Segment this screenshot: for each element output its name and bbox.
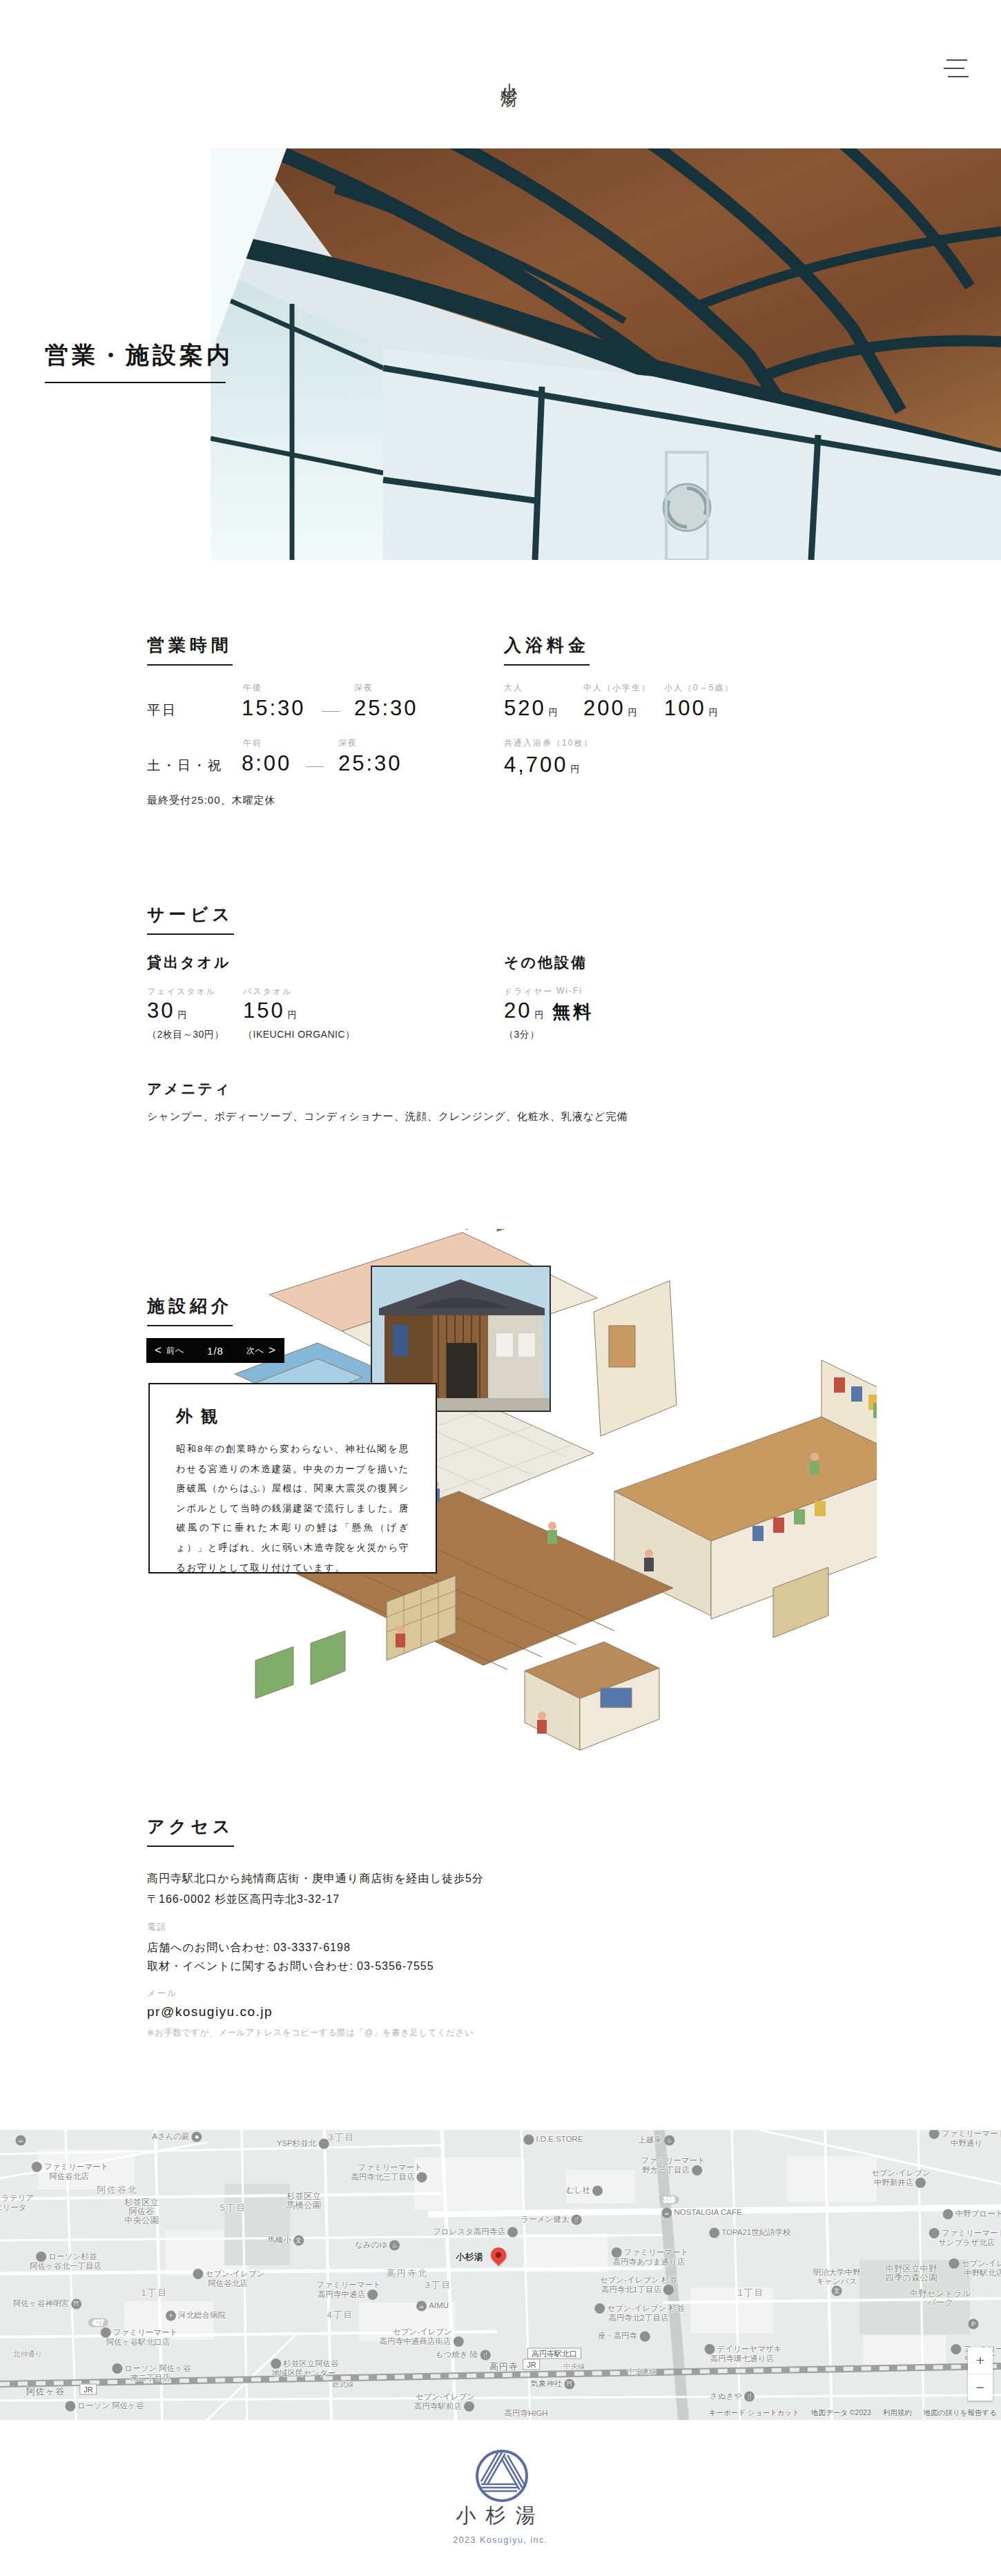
map-label: ファミリーマート中野通り xyxy=(927,2130,1001,2148)
map-label: ファミリーマートサンプラザ北店 xyxy=(927,2228,1001,2247)
map-label: 阿佐ヶ谷神明宮⛩ xyxy=(13,2299,84,2309)
poi-pin-icon xyxy=(592,2186,603,2196)
map-label: 中野セントラルパーク xyxy=(910,2289,971,2307)
fee-value: 520円 xyxy=(504,696,558,721)
fee-label: 小人（0～5歳） xyxy=(664,682,734,694)
map-label: ローソン 阿佐ヶ谷 xyxy=(63,2401,144,2412)
poi-pin-icon: P xyxy=(969,2319,979,2330)
poi-pin-icon xyxy=(705,2344,715,2354)
poi-pin-icon xyxy=(37,2251,47,2262)
map-label: セブン-イレブン高円寺中通商店街店 xyxy=(380,2327,466,2347)
time-dash xyxy=(322,711,340,712)
map-label: なみのゆ♨ xyxy=(355,2240,402,2251)
service-label: フェイスタオル xyxy=(147,986,216,998)
rental-towel-title: 貸出タオル xyxy=(147,953,231,972)
service-value: 無料 xyxy=(552,1000,594,1024)
map-label: 明治大学中野キャンパス文 xyxy=(813,2268,861,2296)
map-label: ☕AIMU xyxy=(414,2301,449,2312)
page-title: 営業・施設案内 xyxy=(45,340,233,371)
service-note: （2枚目～30円） xyxy=(147,1029,224,1041)
map-label: 1丁目 xyxy=(141,2288,168,2297)
map-label: ファミリーマート高円寺あづま通り店 xyxy=(610,2247,689,2267)
email-address: pr@kosugiyu.co.jp xyxy=(147,2004,273,2020)
map-label: デイリーヤマザキ高円寺環七通り店 xyxy=(703,2344,782,2363)
map-label: 馬橋小文 xyxy=(267,2236,306,2246)
tel-press: 取材・イベントに関するお問い合わせ: 03-5356-7555 xyxy=(147,1956,434,1976)
map-label: 1丁目 xyxy=(737,2288,764,2297)
map-label: 座・高円寺 xyxy=(598,2332,652,2342)
poi-pin-icon: ♨ xyxy=(664,2136,674,2146)
poi-pin-icon xyxy=(417,2172,427,2182)
map-label: ラーメン健太🍴 xyxy=(521,2215,584,2225)
service-value: 20円 xyxy=(504,998,544,1023)
map-label: 杉並区立阿佐谷中央公園 xyxy=(124,2198,159,2225)
map-label: 中野区立中野四季の森公園 xyxy=(885,2265,937,2283)
fee-label: 中人（小学生） xyxy=(583,682,651,694)
map-label: ファミリーマート阿佐ヶ谷駅北口店 xyxy=(99,2327,178,2347)
map-label: セブン-イレブン 杉並高円寺北1丁目店 xyxy=(600,2276,677,2295)
fee-label: 共通入浴券（10枚） xyxy=(504,737,593,749)
poi-pin-icon xyxy=(943,2209,953,2220)
map-label: JR xyxy=(523,2361,540,2370)
poi-pin-icon: 🍴 xyxy=(480,2350,490,2361)
map-label: セブン-イレブン高円寺駅前店 xyxy=(414,2392,476,2412)
site-logo[interactable]: 小杉湯 xyxy=(487,41,519,110)
map-data-copyright: 地図データ ©2023 xyxy=(811,2408,871,2417)
map-label: セブン-イレブン阿佐谷北店 xyxy=(191,2269,264,2288)
chevron-right-icon: > xyxy=(269,1344,276,1357)
map-label: 高円寺HIGH xyxy=(504,2409,547,2418)
poi-pin-icon: ☕ xyxy=(416,2301,427,2312)
map-label: ローソン 阿佐ヶ谷南二丁目店 xyxy=(110,2363,191,2383)
prev-button[interactable]: <前へ xyxy=(155,1344,184,1357)
map-label: 3丁目 xyxy=(328,2133,355,2142)
map-label: むし社 xyxy=(566,2186,605,2196)
map-attribution: キーボード ショートカット 地図データ ©2023 利用規約 地図の誤りを報告す… xyxy=(699,2408,997,2418)
map-label: ファミリーマート野方一丁目店 xyxy=(641,2156,706,2176)
poi-pin-icon: 文 xyxy=(293,2236,304,2246)
service-value: 150円 xyxy=(243,998,298,1023)
poi-pin-icon xyxy=(663,2285,674,2295)
map-label: 杉並区立阿佐谷地域区民センター xyxy=(269,2359,339,2378)
facility-section-heading-wrap: 施設紹介 xyxy=(147,1295,233,1326)
map-label: YSP杉並北 xyxy=(277,2139,331,2149)
tel-label: 電話 xyxy=(147,1921,167,1933)
map-label: 🍴ラテリアエリータ xyxy=(0,2193,34,2212)
poi-pin-icon xyxy=(594,2303,605,2314)
service-value: 30円 xyxy=(147,998,187,1023)
access-address: 〒166-0002 杉並区高円寺北3-32-17 xyxy=(147,1889,340,1909)
map-label: 高円寺北 xyxy=(387,2269,428,2278)
poi-pin-icon: 🍴 xyxy=(571,2215,581,2225)
poi-pin-icon: ♨ xyxy=(389,2240,400,2251)
hours-end-cap: 深夜 xyxy=(338,737,358,749)
kosugiyu-facility-page: 小杉湯 xyxy=(0,0,1001,2576)
poi-pin-icon: ♣ xyxy=(192,2132,202,2142)
time-dash xyxy=(306,766,324,767)
other-facility-title: その他設備 xyxy=(504,953,587,972)
poi-pin-icon xyxy=(112,2363,122,2374)
map-label: 4丁目 xyxy=(327,2310,353,2319)
email-note: ※お手数ですが、メールアドレスをコピーする際は「@」を書き足してください xyxy=(147,2027,474,2039)
map-label: 3丁目 xyxy=(425,2280,451,2289)
page-indicator: 1/8 xyxy=(207,1345,224,1357)
services-heading: サービス xyxy=(147,903,234,935)
map-label: ファミリーマート高円寺北三丁目店 xyxy=(351,2163,429,2182)
hours-row-label: 土・日・祝 xyxy=(147,757,223,775)
poi-pin-icon xyxy=(951,2344,961,2354)
footer-credit: 2023 Kosugiyu, inc. xyxy=(0,2535,1001,2545)
fee-label: 大人 xyxy=(504,682,523,694)
mail-label: メール xyxy=(147,1988,177,1999)
poi-pin-icon xyxy=(612,2247,622,2258)
footer-site-name: 小杉湯 xyxy=(0,2502,1001,2530)
footer-logo-crest xyxy=(474,2448,529,2506)
fees-section-heading-wrap: 入浴料金 xyxy=(504,634,590,666)
chevron-left-icon: < xyxy=(155,1344,162,1357)
fee-value: 200円 xyxy=(583,696,638,721)
facility-carousel-nav: <前へ 1/8 次へ> xyxy=(146,1338,284,1363)
services-section-heading-wrap: サービス xyxy=(147,903,234,935)
map-label: 中央線 xyxy=(563,2362,585,2371)
poi-pin-icon: 文 xyxy=(832,2286,842,2296)
map-zoom-control: + − xyxy=(968,2347,993,2401)
service-note: （3分） xyxy=(504,1029,540,1041)
terms-link[interactable]: 利用規約 xyxy=(883,2408,912,2417)
service-note: （IKEUCHI ORGANIC） xyxy=(243,1029,356,1041)
map-label: I.D.E.STORE xyxy=(521,2135,583,2145)
poi-pin-icon xyxy=(271,2359,281,2369)
poi-pin-icon xyxy=(318,2139,329,2149)
hours-heading: 営業時間 xyxy=(147,634,233,666)
service-label: Wi-Fi xyxy=(556,986,583,996)
map-label: 上越泉♨ xyxy=(638,2136,677,2146)
ceiling-photo-illustration xyxy=(211,148,1001,560)
map-label: セブン-イレブン中野新井店 xyxy=(871,2169,931,2188)
poi-pin-icon xyxy=(639,2332,650,2342)
map-label: +河北総合病院 xyxy=(164,2311,226,2321)
next-button[interactable]: 次へ> xyxy=(246,1344,276,1357)
map-label: 総武線 xyxy=(332,2380,354,2389)
map-label: 北仲通り xyxy=(13,2350,42,2359)
service-label: ドライヤー xyxy=(504,986,553,998)
hours-section-heading-wrap: 営業時間 xyxy=(147,634,233,666)
map-label: ファミリーマート高円寺中通店 xyxy=(316,2280,381,2300)
page-title-block: 営業・施設案内 xyxy=(45,340,233,383)
map-label: Aさんの庭♣ xyxy=(152,2132,204,2142)
map-label: 427 xyxy=(88,2318,108,2327)
poi-pin-icon xyxy=(193,2269,203,2279)
map-label: 気象神社⛩ xyxy=(531,2379,577,2390)
poi-pin-icon xyxy=(464,2401,474,2412)
map-label-kosugiyu: 小杉湯 xyxy=(456,2252,483,2261)
map-label: P xyxy=(966,2319,981,2330)
poi-pin-icon: ⛩ xyxy=(71,2299,81,2309)
google-map[interactable]: Aさんの庭♣YSP杉並北3丁目☕ファミリーマート阿佐谷北店阿佐谷北ファミリーマー… xyxy=(0,2130,1001,2420)
fees-heading: 入浴料金 xyxy=(504,634,590,666)
hours-row-label: 平日 xyxy=(147,701,177,719)
map-label: セブン-イレブン中野駅北店 xyxy=(946,2258,1001,2278)
service-label: バスタオル xyxy=(243,986,292,998)
poi-pin-icon xyxy=(367,2289,378,2300)
map-label: JR xyxy=(79,2385,97,2394)
poi-pin-icon xyxy=(709,2228,719,2238)
poi-pin-icon xyxy=(692,2165,702,2176)
access-section-heading-wrap: アクセス xyxy=(147,1815,234,1847)
amenity-text: シャンプー、ボディーソープ、コンディショナー、洗顔、クレンジング、化粧水、乳液な… xyxy=(147,1110,628,1123)
map-label: ローソン杉並阿佐ヶ谷北一丁目店 xyxy=(30,2251,101,2271)
keyboard-shortcuts-link[interactable]: キーボード ショートカット xyxy=(709,2408,799,2417)
poi-pin-icon: 🍴 xyxy=(744,2392,755,2402)
poi-pin-icon xyxy=(523,2135,534,2145)
poi-pin-icon xyxy=(453,2336,463,2347)
tel-shop: 店舗へのお問い合わせ: 03-3337-6198 xyxy=(147,1937,351,1957)
hours-end-cap: 深夜 xyxy=(354,682,373,694)
map-label: もつ焼き 陸🍴 xyxy=(436,2350,493,2361)
poi-pin-icon: ☕ xyxy=(661,2208,672,2218)
map-label: さぬきや🍴 xyxy=(710,2392,757,2402)
poi-pin-icon xyxy=(929,2228,940,2238)
poi-pin-icon xyxy=(65,2401,75,2412)
card-body: 昭和8年の創業時から変わらない、神社仏閣を思わせる宮造りの木造建築。中央のカーブ… xyxy=(176,1440,409,1578)
map-label: 中野ブロード xyxy=(941,2209,1001,2220)
poi-pin-icon xyxy=(32,2162,42,2172)
hamburger-menu-icon[interactable] xyxy=(945,59,969,79)
hours-start-cap: 午後 xyxy=(243,682,262,694)
map-label: フロレスタ高円寺店 xyxy=(433,2227,520,2238)
access-heading: アクセス xyxy=(147,1815,234,1847)
poi-pin-icon xyxy=(507,2227,518,2238)
hours-end-time: 25:30 xyxy=(338,751,402,776)
map-label: 5丁目 xyxy=(220,2203,246,2212)
zoom-out-button[interactable]: − xyxy=(968,2374,993,2401)
map-label: ☕NOSTALGIA CAFE xyxy=(659,2208,741,2218)
poi-pin-icon xyxy=(929,2130,940,2139)
card-title: 外観 xyxy=(176,1405,409,1427)
hours-start-time: 15:30 xyxy=(242,696,306,721)
report-error-link[interactable]: 地図の誤りを報告する xyxy=(924,2408,997,2417)
map-label: 阿佐谷北 xyxy=(97,2185,138,2194)
poi-pin-icon xyxy=(949,2258,959,2269)
map-label: 高円寺 xyxy=(489,2362,518,2371)
title-underline xyxy=(45,382,226,383)
map-label: 318 xyxy=(659,2196,679,2205)
poi-pin-icon: ☕ xyxy=(16,2136,26,2146)
facility-heading: 施設紹介 xyxy=(147,1295,233,1326)
hours-end-time: 25:30 xyxy=(354,696,418,721)
map-label: 杉並区立馬橋公園 xyxy=(286,2192,321,2210)
hours-note: 最終受付25:00、木曜定休 xyxy=(147,794,276,807)
map-label: ファミリーマート阿佐谷北店 xyxy=(30,2162,109,2181)
amenity-title: アメニティ xyxy=(147,1079,231,1098)
access-route: 高円寺駅北口から純情商店街・庚申通り商店街を経由し徒歩5分 xyxy=(147,1868,484,1888)
poi-pin-icon: + xyxy=(166,2311,176,2321)
poi-pin-icon xyxy=(915,2178,926,2188)
hero-ceiling-photo xyxy=(211,148,1001,560)
fee-value: 100円 xyxy=(664,696,719,721)
hours-start-time: 8:00 xyxy=(242,751,291,776)
poi-pin-icon: ⛩ xyxy=(565,2379,575,2390)
zoom-in-button[interactable]: + xyxy=(968,2347,993,2374)
map-label: ☕ xyxy=(14,2136,28,2146)
hours-start-cap: 午前 xyxy=(243,737,262,749)
map-label: 高円寺駅北口 xyxy=(527,2350,581,2359)
map-label: 阿佐ヶ谷 xyxy=(26,2387,65,2396)
exterior-info-card: 外観 昭和8年の創業時から変わらない、神社仏閣を思わせる宮造りの木造建築。中央の… xyxy=(148,1383,437,1573)
fee-value: 4,700円 xyxy=(504,753,581,777)
map-label: TOPA21世紀語学校 xyxy=(707,2228,791,2238)
map-label: セブン-イレブン 杉並高円寺北2丁目店 xyxy=(592,2303,684,2323)
poi-pin-icon xyxy=(101,2327,111,2338)
map-label: 中央東線 xyxy=(628,2367,657,2376)
